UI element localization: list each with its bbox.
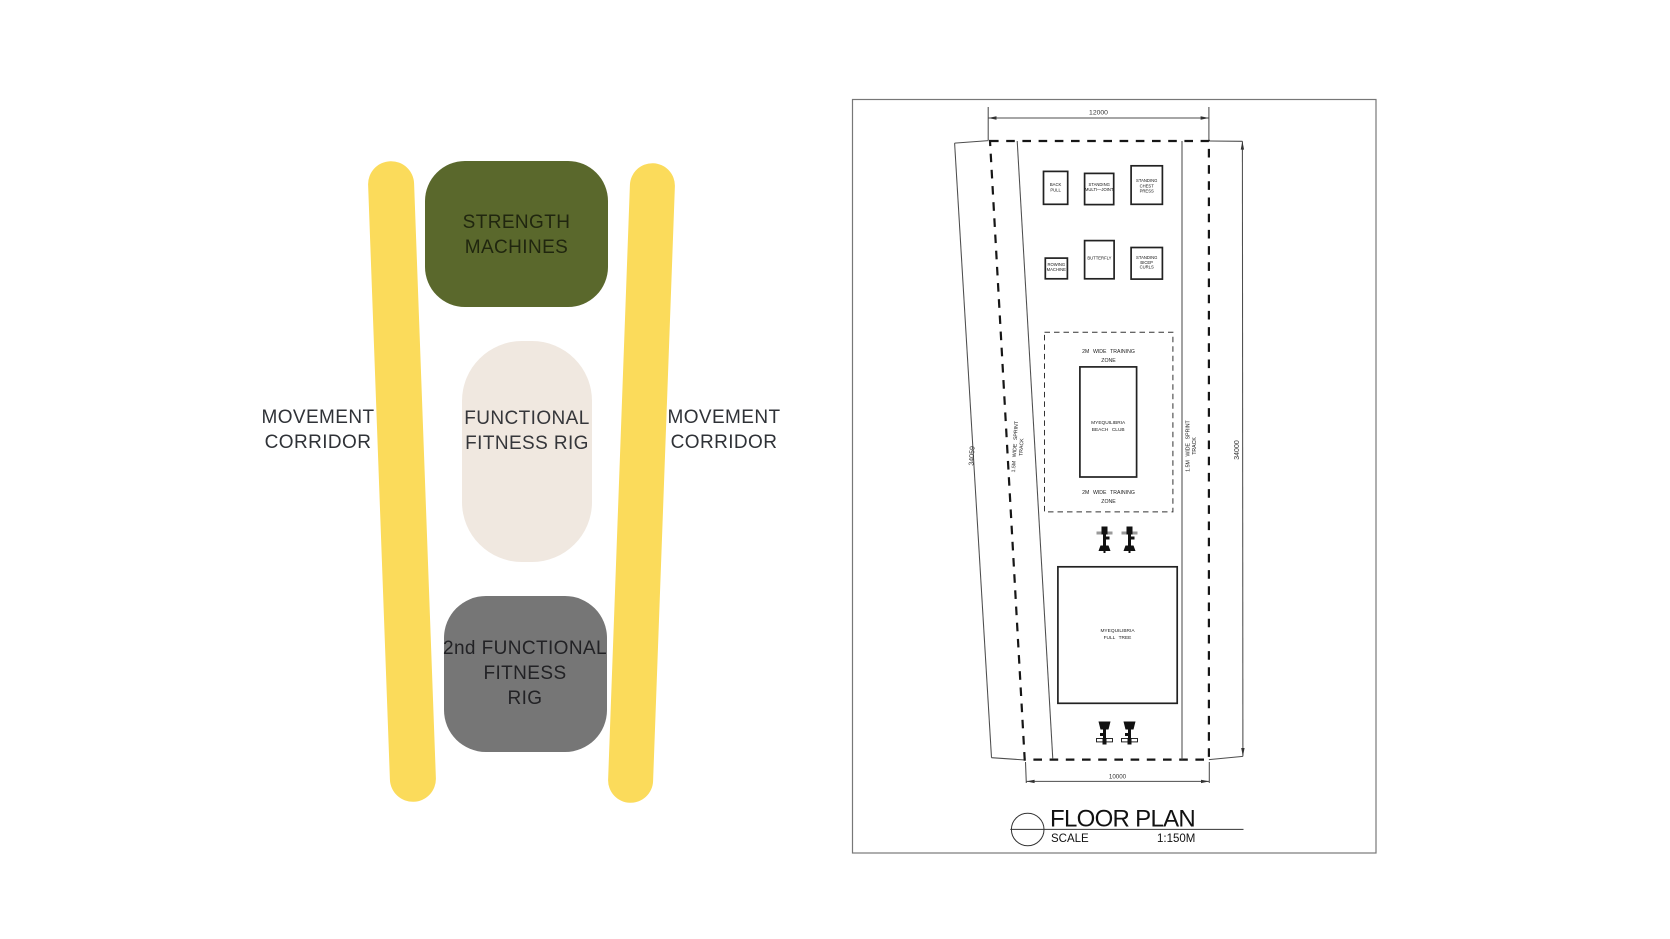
svg-text:STANDING: STANDING — [1136, 178, 1157, 183]
svg-text:FLOOR PLAN: FLOOR PLAN — [1050, 806, 1195, 833]
svg-text:FULL TREE: FULL TREE — [1104, 635, 1132, 641]
svg-text:MULTI—JOINT: MULTI—JOINT — [1085, 187, 1114, 192]
svg-text:ZONE: ZONE — [1101, 499, 1116, 505]
svg-text:ZONE: ZONE — [1101, 358, 1116, 364]
svg-text:34059: 34059 — [968, 446, 976, 466]
svg-text:34000: 34000 — [1234, 440, 1241, 460]
svg-text:PULL: PULL — [1050, 187, 1061, 192]
svg-text:BEACH CLUB: BEACH CLUB — [1092, 427, 1125, 433]
svg-text:MYEQUILIBRIA: MYEQUILIBRIA — [1100, 628, 1135, 634]
svg-text:CURLS: CURLS — [1140, 265, 1154, 270]
svg-text:12000: 12000 — [1089, 110, 1108, 117]
svg-text:MACHINE: MACHINE — [1047, 267, 1067, 272]
svg-text:MYEQUILIBRIA: MYEQUILIBRIA — [1091, 420, 1126, 426]
svg-text:PRESS: PRESS — [1140, 188, 1154, 193]
svg-text:10000: 10000 — [1109, 774, 1127, 781]
svg-text:2M WIDE TRAINING: 2M WIDE TRAINING — [1082, 349, 1135, 355]
svg-text:2M WIDE TRAINING: 2M WIDE TRAINING — [1082, 490, 1135, 496]
svg-text:1.5M WIDE SPRINTTRACK: 1.5M WIDE SPRINTTRACK — [1011, 420, 1027, 473]
svg-text:1:150M: 1:150M — [1157, 833, 1195, 845]
svg-text:SCALE: SCALE — [1051, 833, 1089, 845]
svg-text:BUTTERFLY: BUTTERFLY — [1087, 256, 1111, 261]
svg-text:1.5M WIDE SPRINTTRACK: 1.5M WIDE SPRINTTRACK — [1186, 419, 1199, 471]
